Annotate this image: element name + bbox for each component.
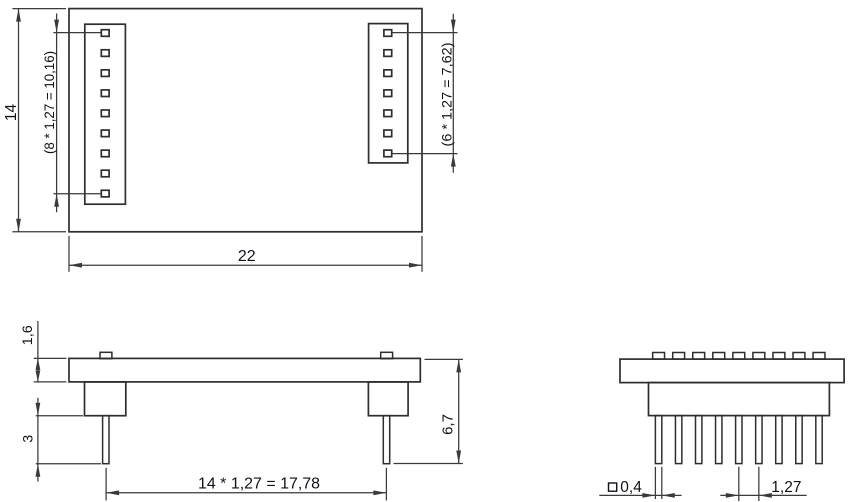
svg-text:6,7: 6,7: [439, 414, 456, 435]
svg-text:(8 * 1,27 = 10,16): (8 * 1,27 = 10,16): [41, 51, 57, 154]
svg-text:1,6: 1,6: [19, 325, 35, 345]
svg-text:22: 22: [238, 248, 256, 265]
svg-text:14 * 1,27 = 17,78: 14 * 1,27 = 17,78: [198, 476, 320, 493]
svg-text:3: 3: [20, 435, 36, 443]
svg-text:0,4: 0,4: [620, 479, 642, 496]
svg-text:(6 * 1,27 = 7,62): (6 * 1,27 = 7,62): [438, 43, 454, 147]
svg-text:14: 14: [3, 104, 20, 122]
svg-text:1,27: 1,27: [771, 479, 801, 496]
